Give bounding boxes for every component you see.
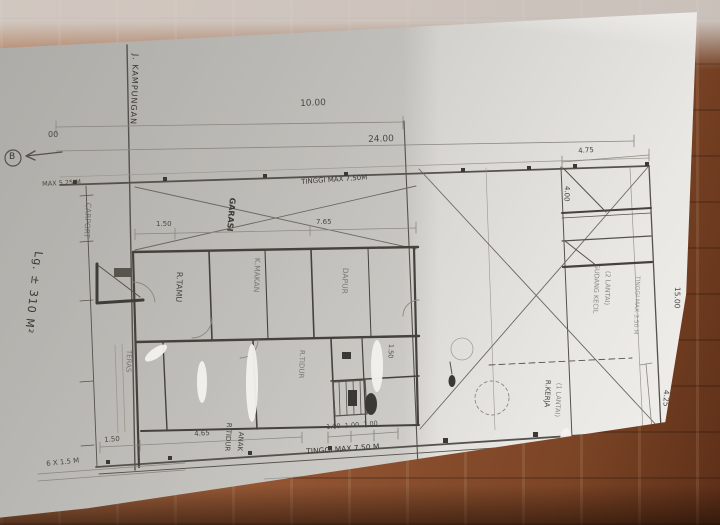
room-label-gudang-1: GUDANG KECIL [592,264,600,314]
room-label-garasi: GARASI [225,197,236,231]
room-label-dapur: DAPUR [341,268,349,294]
room-label-rtamu: R.TAMU [174,272,183,303]
dim-inner-1-50: 1.50 [387,344,394,359]
dim-4-75: 4.75 [578,147,594,155]
dim-24-00: 24.00 [368,135,394,145]
dim-15-00: 15.00 [673,287,681,309]
room-label-rkerja-1: R.KERJA [543,380,551,408]
room-label-rkerja-2: (1 LANTAI) [554,383,562,417]
street-label: J. KAMPUNGAN [129,54,139,125]
room-label-rtidur-anak-1: R.TIDUR [223,423,232,452]
room-label-kmakan: K.MAKAN [252,258,261,293]
photo-of-floorplan: B J. KAMPUNGAN Lg. ± 310 M² 00 10.00 24.… [0,0,720,525]
dim-left-1-50: 1.50 [104,436,120,444]
room-label-teras: TERAS [124,350,132,373]
dim-garage-1-50: 1.50 [156,221,172,228]
dim-4-00: 4.00 [562,186,570,202]
room-label-carport: CARPORT [83,203,92,239]
max-height-left: MAX 5.25 M [42,179,81,188]
dim-4-65: 4.65 [194,430,210,438]
dim-garage-7-65: 7.65 [316,219,332,226]
note-max-3-50: TINGGI MAX 3.50 M [632,276,640,335]
dim-left-partial: 00 [48,131,58,139]
section-marker-b: B [9,153,15,162]
room-label-rtidur-anak-2: ANAK [236,432,244,452]
dim-10-00: 10.00 [300,99,326,109]
room-label-gudang-2: (2 LANTAI) [603,271,611,305]
room-label-rtidur: R.TIDUR [297,350,305,379]
